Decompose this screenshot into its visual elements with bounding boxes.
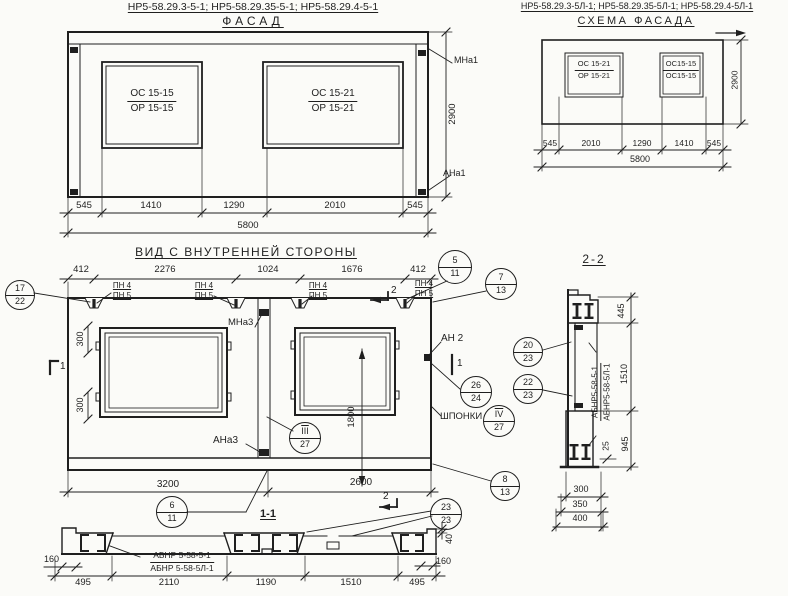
callout-7-13: 713 (485, 268, 517, 300)
section-mark-1: 1 (60, 361, 66, 372)
callout-5-11: 511 (438, 250, 472, 284)
dim-label: 445 (617, 303, 627, 318)
dim-label: 945 (621, 436, 631, 451)
facade-codes-title: НР5-58.29.3-5-1; НР5-58.29.35-5-1; НР5-5… (128, 2, 378, 14)
dim-label: 1410 (675, 139, 694, 148)
window-code-bottom: ОР 15-15 (127, 102, 176, 115)
callout-IV-27: IV27 (483, 405, 515, 437)
dim-label: 160 (436, 557, 451, 567)
blueprint-page: НР5-58.29.3-5-1; НР5-58.29.35-5-1; НР5-5… (0, 0, 788, 596)
pn5-label: ПН 5 (415, 289, 433, 299)
callout-top: 7 (498, 273, 503, 282)
dim-label: 1290 (633, 139, 652, 148)
abnr-code-top: АБНР 5-58-5-1 (150, 551, 214, 563)
dim-label: 400 (572, 514, 587, 524)
schema-title: СХЕМА ФАСАДА (578, 15, 695, 27)
pn4-label: ПН 4 (415, 279, 433, 289)
dim-label: 2010 (324, 201, 345, 211)
pn4-label: ПН 4 (309, 281, 327, 291)
callout-bottom: 22 (15, 297, 25, 306)
pn-marks: ПН 4 ПН 5 (309, 281, 327, 301)
anchor-mark-mna1: МНа1 (454, 56, 478, 66)
callout-top: 23 (441, 503, 451, 512)
dim-label: 40 (445, 534, 455, 544)
callout-top: 22 (523, 378, 533, 387)
callout-bottom: 11 (167, 514, 176, 523)
callout-bottom: 23 (441, 516, 451, 525)
callout-top: 17 (15, 284, 25, 293)
dim-label: 160 (44, 555, 59, 565)
abnr-code-bottom: АБНР 5-58-5Л-1 (150, 563, 214, 574)
schema-window-right-mark: ОС15-15 ОС15-15 (663, 60, 699, 80)
callout-bottom: 27 (300, 440, 310, 449)
section-1-1-title: 1-1 (260, 508, 276, 520)
callout-top: 5 (452, 256, 457, 265)
dim-label: 1510 (340, 578, 361, 588)
pn-marks: ПН 4 ПН 5 (113, 281, 131, 301)
window-code-top: ОС 15-21 (308, 88, 357, 102)
anchor-mark-ana1: АНа1 (443, 169, 466, 179)
callout-top: IV (495, 410, 504, 419)
callout-bottom: 13 (500, 488, 510, 497)
dim-total-label: 5800 (237, 221, 258, 231)
dim-label: 25 (601, 441, 610, 450)
dim-label: 2010 (582, 139, 601, 148)
window-code-bottom: ОР 15-21 (308, 102, 357, 115)
section-mark-2: 2 (391, 285, 397, 296)
window-code-bottom: ОС15-15 (663, 71, 699, 81)
section-mark-1: 1 (457, 358, 463, 369)
dim-label: 412 (410, 265, 426, 275)
section-2-2-title: 2-2 (582, 253, 605, 266)
callout-26-24: 2624 (460, 376, 492, 408)
callout-23-23: 2323 (430, 498, 462, 530)
dim-label: 1410 (140, 201, 161, 211)
callout-bottom: 23 (523, 391, 533, 400)
dim-label: 300 (76, 397, 86, 412)
callout-top: 8 (502, 475, 507, 484)
callout-20-23: 2023 (513, 337, 543, 367)
anchor-mark-an2: АН 2 (441, 333, 463, 344)
abnr-marks: АБНР5-58-5-1 АБНР5-58-5Л-1 (590, 363, 611, 421)
facade-window-left-mark: ОС 15-15 ОР 15-15 (127, 88, 176, 114)
callout-top: III (301, 427, 309, 436)
pn-marks: ПН 4 ПН 5 (415, 279, 433, 299)
callout-bottom: 11 (450, 269, 459, 278)
dim-label: 545 (707, 139, 721, 148)
pn4-label: ПН 4 (113, 281, 131, 291)
schema-window-left-mark: ОС 15-21 ОР 15-21 (575, 60, 614, 80)
callout-bottom: 23 (523, 354, 533, 363)
section-mark-2: 2 (383, 491, 389, 502)
schema-codes-title: НР5-58.29.3-5Л-1; НР5-58.29.35-5Л-1; НР5… (521, 2, 753, 12)
dim-label: 545 (543, 139, 557, 148)
dim-label: 412 (73, 265, 89, 275)
dim-height-label: 2900 (448, 103, 458, 124)
window-code-top: ОС 15-21 (575, 60, 614, 71)
dim-height-label: 2900 (730, 71, 739, 90)
abnr-code-top: АБНР5-58-5-1 (590, 363, 601, 421)
pn5-label: ПН 5 (195, 291, 213, 301)
dim-label: 350 (572, 500, 587, 510)
abnr-marks: АБНР 5-58-5-1 АБНР 5-58-5Л-1 (150, 551, 214, 574)
abnr-code-bottom: АБНР5-58-5Л-1 (602, 363, 612, 421)
callout-top: 26 (471, 381, 481, 390)
callout-top: 6 (169, 501, 174, 510)
pn5-label: ПН 5 (113, 291, 131, 301)
dim-label: 2276 (154, 265, 175, 275)
shponki-label: ШПОНКИ (440, 412, 482, 422)
dim-label: 3200 (157, 479, 179, 490)
dim-label: 2110 (159, 578, 179, 588)
pn4-label: ПН 4 (195, 281, 213, 291)
callout-17-22: 1722 (5, 280, 35, 310)
window-code-bottom: ОР 15-21 (575, 71, 614, 81)
dim-label: 300 (76, 331, 86, 346)
anchor-mark-ana3: АНа3 (213, 435, 238, 446)
callout-22-23: 2223 (513, 374, 543, 404)
window-code-top: ОС 15-15 (127, 88, 176, 102)
dim-label: 1510 (620, 364, 630, 384)
window-code-top: ОС15-15 (663, 60, 699, 71)
callout-bottom: 13 (496, 286, 506, 295)
callout-6-11: 611 (156, 496, 188, 528)
dim-label: 495 (409, 578, 425, 588)
callout-III-27: III27 (289, 422, 321, 454)
inner-view-title: ВИД С ВНУТРЕННЕЙ СТОРОНЫ (135, 246, 357, 259)
facade-window-right-mark: ОС 15-21 ОР 15-21 (308, 88, 357, 114)
dim-label: 1024 (257, 265, 278, 275)
callout-bottom: 27 (494, 423, 504, 432)
dim-total-label: 5800 (630, 155, 650, 165)
pn5-label: ПН 5 (309, 291, 327, 301)
dim-label: 1190 (256, 578, 276, 588)
dim-label: 1676 (341, 265, 362, 275)
dim-label: 300 (573, 485, 588, 495)
dim-label: 2600 (350, 477, 372, 488)
callout-top: 20 (523, 341, 533, 350)
dim-label: 1800 (347, 406, 357, 427)
anchor-mark-mna3: МНа3 (228, 318, 253, 328)
callout-bottom: 24 (471, 394, 481, 403)
dim-label: 545 (76, 201, 92, 211)
pn-marks: ПН 4 ПН 5 (195, 281, 213, 301)
dim-label: 1290 (223, 201, 244, 211)
dim-label: 545 (407, 201, 423, 211)
callout-8-13: 813 (490, 471, 520, 501)
dim-label: 495 (75, 578, 91, 588)
facade-title: ФАСАД (222, 15, 284, 28)
